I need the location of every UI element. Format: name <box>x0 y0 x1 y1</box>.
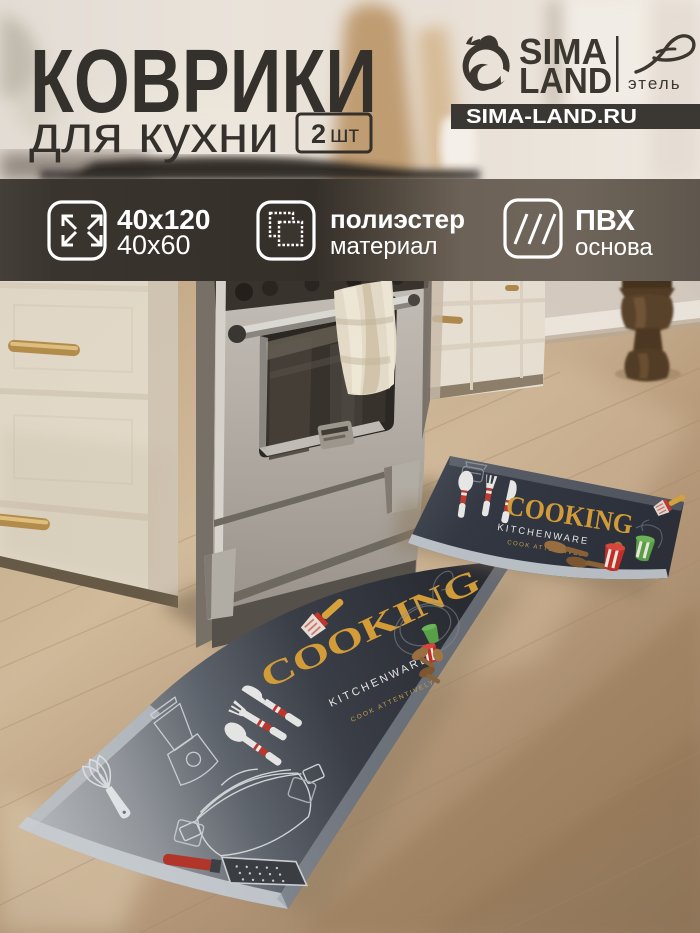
svg-text:2: 2 <box>311 119 326 149</box>
svg-text:для кухни: для кухни <box>29 106 279 164</box>
svg-text:40х60: 40х60 <box>117 230 191 260</box>
svg-text:SIMA-LAND.RU: SIMA-LAND.RU <box>466 106 637 128</box>
svg-text:LAND: LAND <box>519 60 612 101</box>
svg-text:основа: основа <box>575 234 653 261</box>
svg-text:полиэстер: полиэстер <box>330 204 465 234</box>
svg-text:шт: шт <box>330 121 359 147</box>
svg-text:этель: этель <box>628 74 682 93</box>
svg-text:материал: материал <box>330 233 438 260</box>
svg-text:ПВХ: ПВХ <box>575 205 636 237</box>
